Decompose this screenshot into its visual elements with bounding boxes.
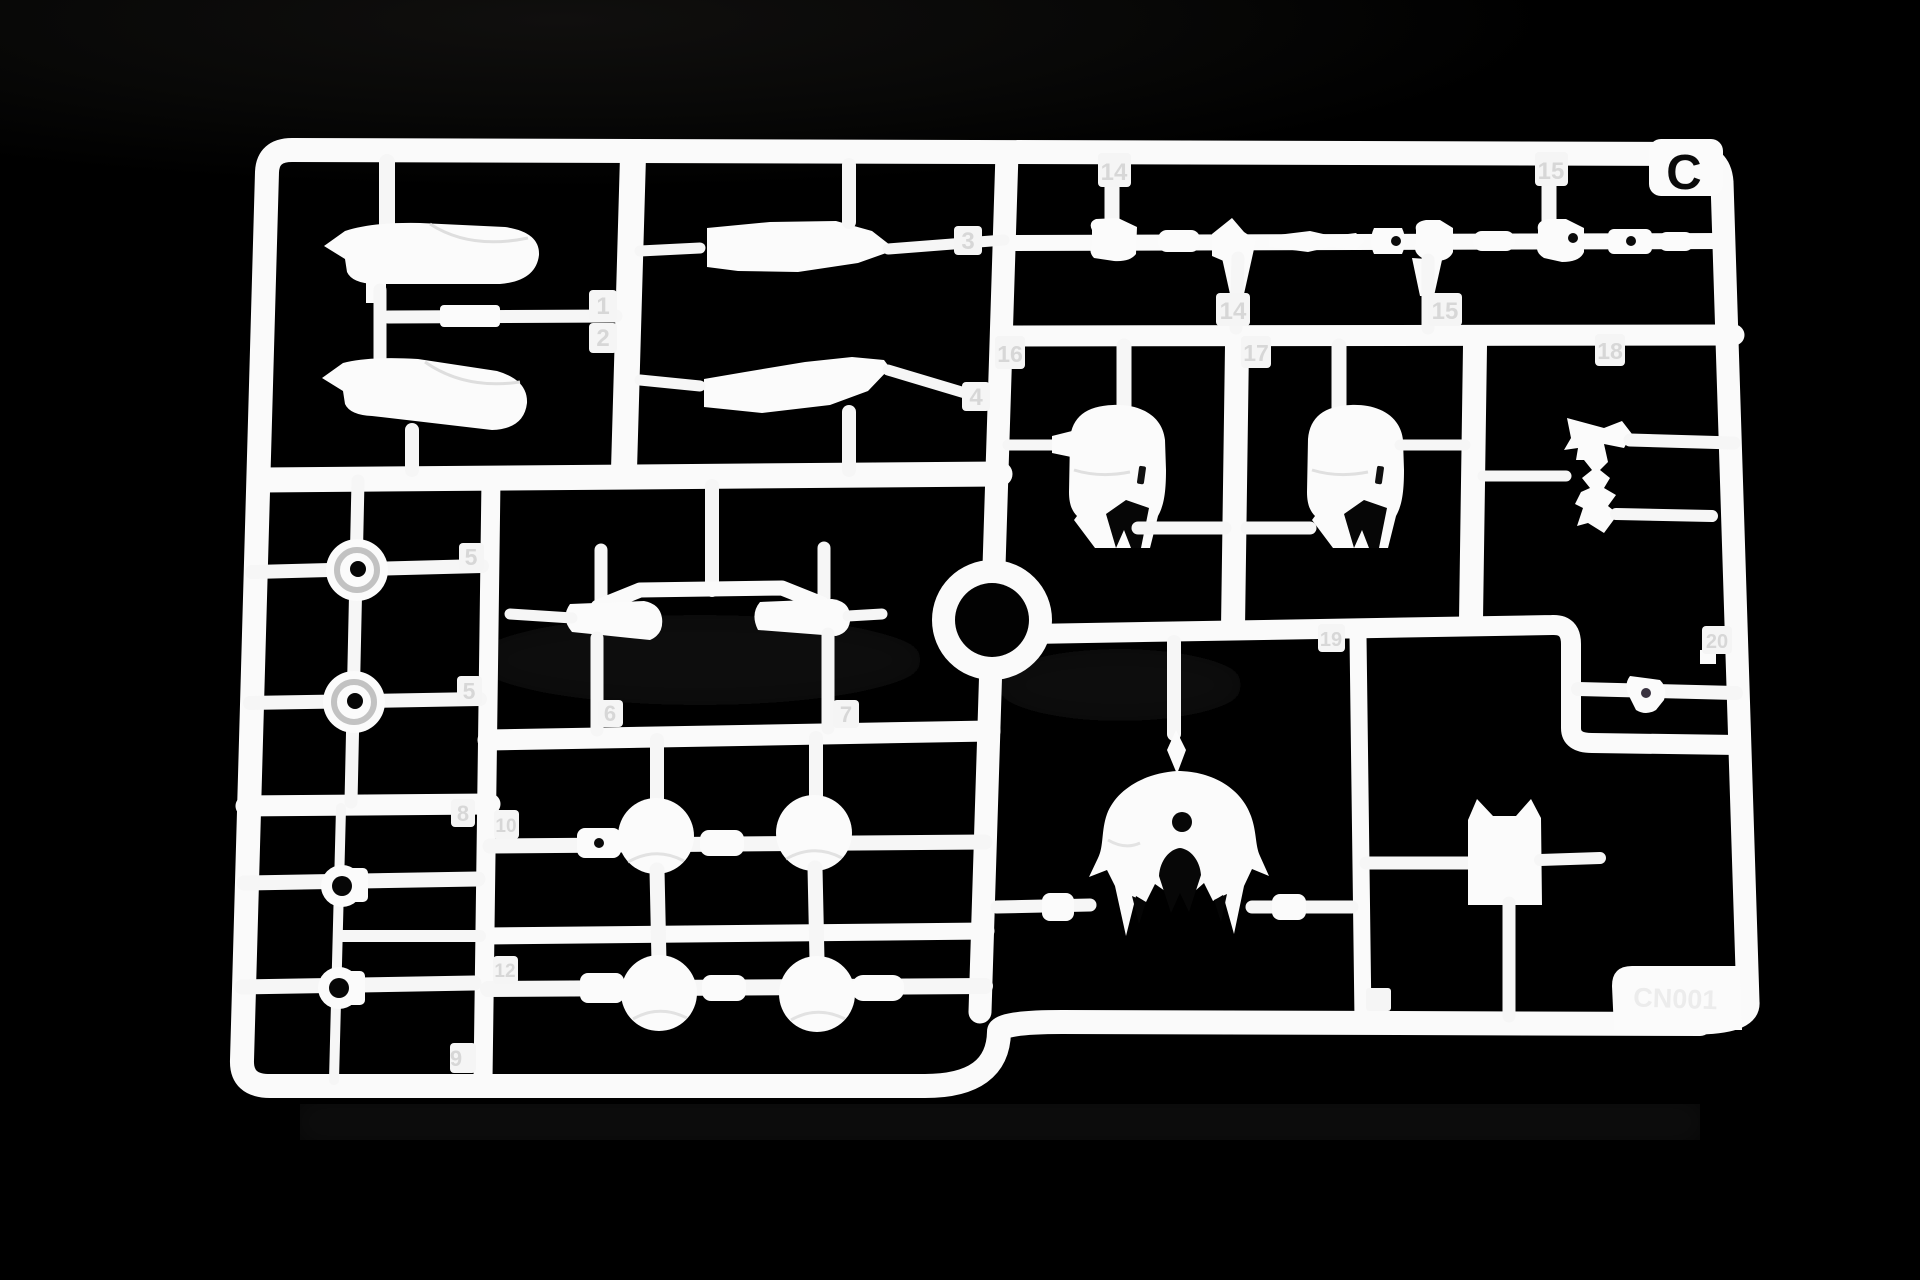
svg-text:9: 9 — [450, 1046, 462, 1071]
svg-text:C: C — [1666, 146, 1701, 200]
svg-text:10: 10 — [495, 816, 516, 837]
svg-text:18: 18 — [1597, 338, 1623, 364]
svg-text:4: 4 — [969, 384, 983, 411]
svg-text:12: 12 — [494, 961, 515, 982]
svg-text:7: 7 — [840, 702, 852, 727]
svg-text:20: 20 — [1706, 631, 1728, 653]
svg-text:15: 15 — [1432, 298, 1459, 325]
svg-text:5: 5 — [463, 678, 476, 704]
svg-text:6: 6 — [604, 701, 616, 726]
svg-text:5: 5 — [465, 544, 478, 570]
svg-text:16: 16 — [997, 341, 1023, 367]
svg-text:2: 2 — [596, 325, 609, 352]
svg-text:3: 3 — [961, 228, 974, 255]
svg-text:CN001: CN001 — [1633, 982, 1718, 1015]
svg-text:1: 1 — [596, 293, 609, 320]
svg-text:17: 17 — [1243, 340, 1269, 366]
svg-text:14: 14 — [1220, 298, 1247, 325]
svg-text:14: 14 — [1101, 159, 1128, 186]
svg-text:19: 19 — [1320, 629, 1342, 651]
svg-text:8: 8 — [457, 801, 469, 826]
svg-text:15: 15 — [1538, 158, 1565, 185]
